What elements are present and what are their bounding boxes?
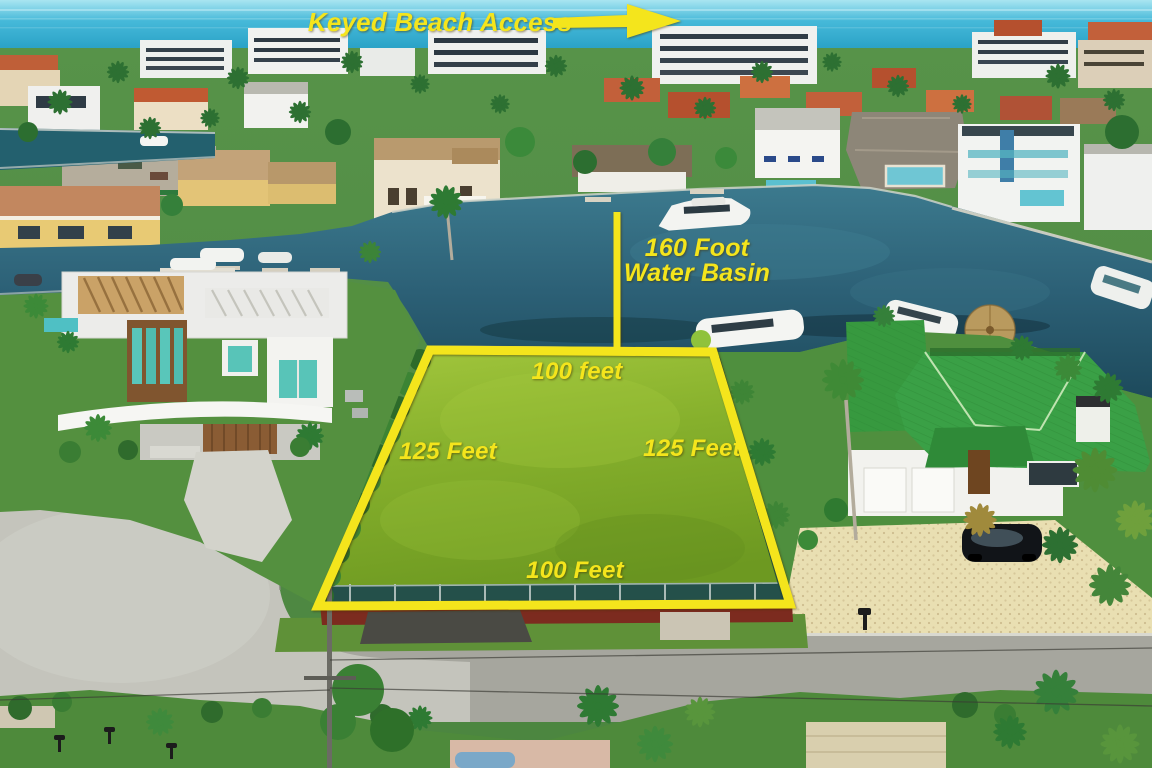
- aerial-photo: Keyed Beach Access 160 Foot Water Basin …: [0, 0, 1152, 768]
- lot-top-label: 100 feet: [532, 358, 624, 385]
- garage-door: [864, 468, 906, 512]
- boat-dark: [14, 274, 42, 286]
- white-pergola: [205, 288, 329, 318]
- boat-west-arm-2: [258, 252, 292, 263]
- basin-label-line2: Water Basin: [624, 259, 770, 287]
- front-windows: [1028, 462, 1078, 486]
- lot-right-label: 125 Feet: [643, 435, 741, 462]
- lot-left-label: 125 Feet: [399, 438, 497, 465]
- lot-bottom-label: 100 Feet: [526, 557, 624, 584]
- entry-door: [968, 450, 990, 494]
- basin-label-line1: 160 Foot: [645, 234, 751, 262]
- garage-door: [912, 468, 954, 512]
- wood-pergola: [78, 276, 184, 314]
- garage-door-wood: [203, 424, 277, 454]
- beach-access-label: Keyed Beach Access: [308, 7, 572, 37]
